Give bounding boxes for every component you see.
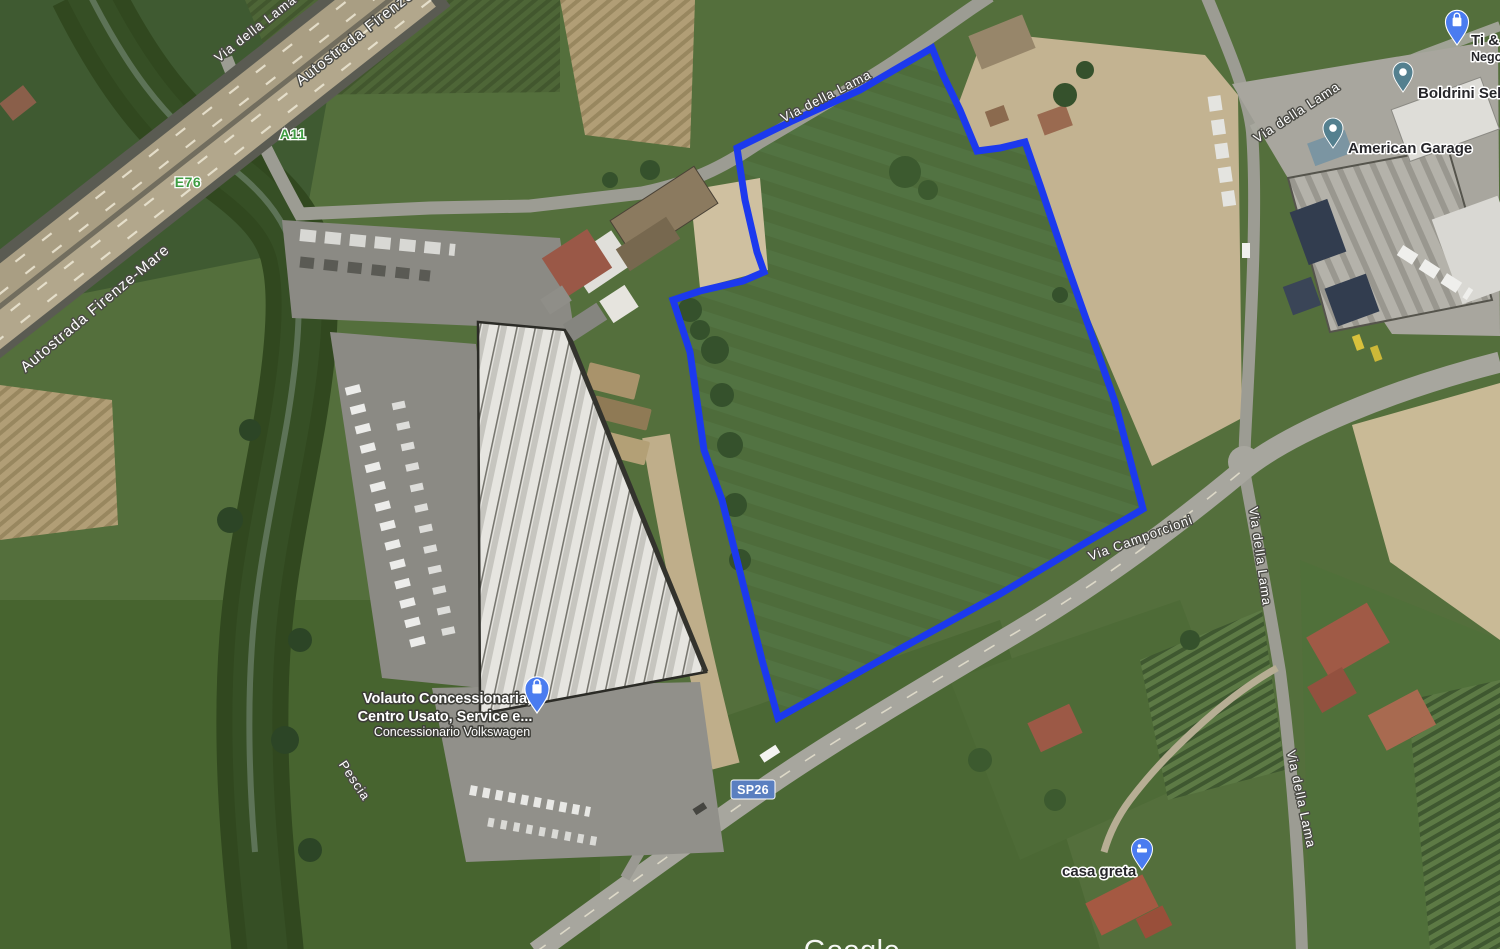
poi-label-american-garage[interactable]: American Garage	[1348, 140, 1472, 157]
poi-label-volauto-line3[interactable]: Concessionario Volkswagen	[374, 725, 530, 739]
shield-sp26: SP26	[731, 780, 775, 799]
poi-label-casa-greta[interactable]: casa greta	[1062, 863, 1137, 880]
poi-label-ti-shop[interactable]: Ti & I	[1471, 32, 1500, 49]
map-canvas[interactable]: Via della Lama Autostrada Firenze-Mare A…	[0, 0, 1500, 949]
poi-label-volauto-line1[interactable]: Volauto Concessionaria,	[363, 691, 531, 707]
poi-label-boldrini[interactable]: Boldrini Selle	[1418, 85, 1500, 102]
lodging-bed-icon	[1137, 849, 1147, 853]
map-viewport[interactable]: Via della Lama Autostrada Firenze-Mare A…	[0, 0, 1500, 949]
shopping-bag-icon	[1453, 18, 1462, 27]
poi-dot-icon	[1399, 68, 1407, 76]
google-watermark: Google	[804, 935, 901, 949]
poi-label-volauto-line2[interactable]: Centro Usato, Service e...	[358, 709, 533, 725]
poi-dot-icon	[1329, 124, 1337, 132]
shield-e76: E76	[175, 174, 201, 190]
shopping-bag-icon	[532, 684, 541, 693]
sp26-badge-text: SP26	[737, 783, 769, 797]
shield-a11: A11	[280, 126, 306, 142]
poi-label-ti-shop-line2[interactable]: Negoz	[1471, 50, 1500, 64]
